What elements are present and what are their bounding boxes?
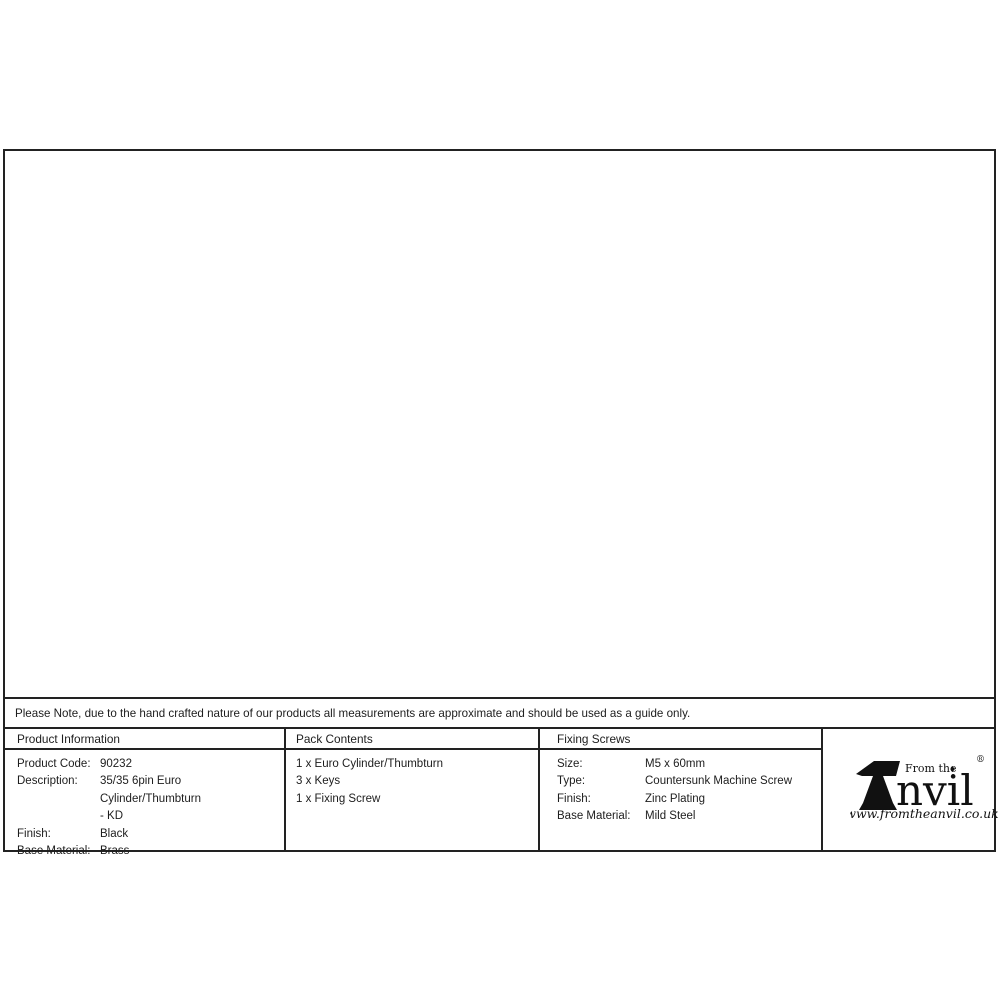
pack-contents-header: Pack Contents [286,729,538,748]
logo-website: www.fromtheanvil.co.uk [850,806,999,821]
table-row: Finish: Zinc Plating [557,791,817,808]
row-value: 35/35 6pin Euro Cylinder/Thumbturn - KD [100,773,284,825]
table-row: Base Material: Brass [17,843,284,860]
table-row: Size: M5 x 60mm [557,756,817,773]
datasheet-page: { "drawing": { "dims": { "cylinder_heigh… [0,0,1000,1000]
row-value: Brass [100,843,129,860]
product-information-body: Product Code: 90232 Description: 35/35 6… [5,748,284,860]
table-row: Finish: Black [17,826,284,843]
pack-item: 3 x Keys [296,773,538,790]
row-label: Base Material: [557,808,645,825]
table-row: Base Material: Mild Steel [557,808,817,825]
product-information-column: Product Information Product Code: 90232 … [5,729,284,850]
pack-contents-column: Pack Contents 1 x Euro Cylinder/Thumbtur… [286,729,538,850]
row-value: Black [100,826,128,843]
row-label: Finish: [557,791,645,808]
fixing-screws-header: Fixing Screws [540,729,817,748]
row-label: Finish: [17,826,100,843]
anvil-icon [856,761,900,810]
registered-mark: ® [976,755,985,765]
row-label: Description: [17,773,100,825]
fixing-screws-column: Fixing Screws Size: M5 x 60mm Type: Coun… [540,729,817,850]
pack-item: 1 x Euro Cylinder/Thumbturn [296,756,538,773]
anvil-logo: From the ♦ nvil ® www.fromtheanvil.co.uk [850,748,1000,828]
row-value: Mild Steel [645,808,696,825]
row-label: Type: [557,773,645,790]
row-label: Base Material: [17,843,100,860]
table-row: Type: Countersunk Machine Screw [557,773,817,790]
table-row: Description: 35/35 6pin Euro Cylinder/Th… [17,773,284,825]
sheet-border: Please Note, due to the hand crafted nat… [3,149,996,852]
row-value: M5 x 60mm [645,756,705,773]
pack-contents-body: 1 x Euro Cylinder/Thumbturn 3 x Keys 1 x… [286,748,538,808]
pack-item: 1 x Fixing Screw [296,791,538,808]
row-value: Zinc Plating [645,791,705,808]
note-text: Please Note, due to the hand crafted nat… [15,707,690,720]
row-label: Product Code: [17,756,100,773]
product-information-header: Product Information [5,729,284,748]
brand-logo: From the ♦ nvil ® www.fromtheanvil.co.uk [850,748,1000,828]
note-bar: Please Note, due to the hand crafted nat… [5,697,994,729]
fixing-screws-body: Size: M5 x 60mm Type: Countersunk Machin… [540,748,817,826]
row-label: Size: [557,756,645,773]
row-value: Countersunk Machine Screw [645,773,792,790]
row-value: 90232 [100,756,132,773]
table-row: Product Code: 90232 [17,756,284,773]
